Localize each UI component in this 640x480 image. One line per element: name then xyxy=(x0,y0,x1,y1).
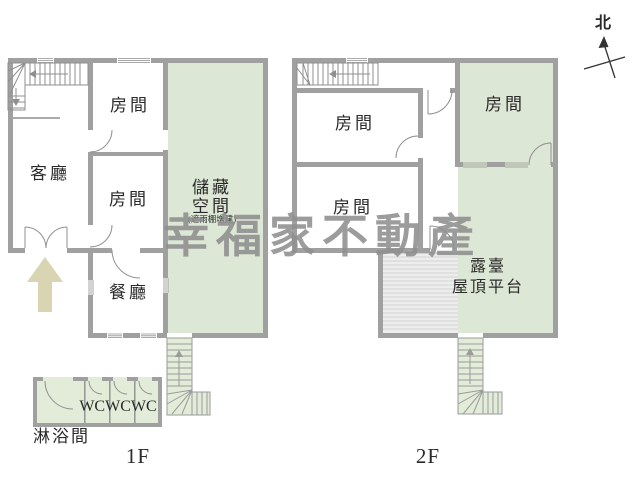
entrance-arrow xyxy=(27,257,63,312)
north-arrow xyxy=(584,36,625,78)
stairs-1f-upper xyxy=(8,63,88,118)
label-room-mid-1f: 房間 xyxy=(96,190,162,210)
label-north: 北 xyxy=(588,15,618,33)
label-room-upper-2f: 房間 xyxy=(322,114,388,134)
label-shower-room: 淋浴間 xyxy=(33,427,113,447)
label-wc: WCWCWC xyxy=(76,398,160,416)
label-living-room: 客廳 xyxy=(18,164,82,184)
stairs-2f-upper xyxy=(297,63,378,85)
label-dining-room: 餐廳 xyxy=(96,283,162,303)
floorplan-image: 房間 房間 客廳 餐廳 儲藏 空間 (遮雨棚增建) WCWCWC 淋浴間 1F … xyxy=(0,0,640,480)
label-room-top-1f: 房間 xyxy=(97,96,163,116)
label-terrace: 露臺 屋頂平台 xyxy=(418,256,558,298)
label-floor-2f: 2F xyxy=(402,444,454,468)
label-room-green-2f: 房間 xyxy=(472,95,538,115)
watermark-text: 幸福家不動產 xyxy=(146,210,498,262)
label-floor-1f: 1F xyxy=(112,444,164,468)
